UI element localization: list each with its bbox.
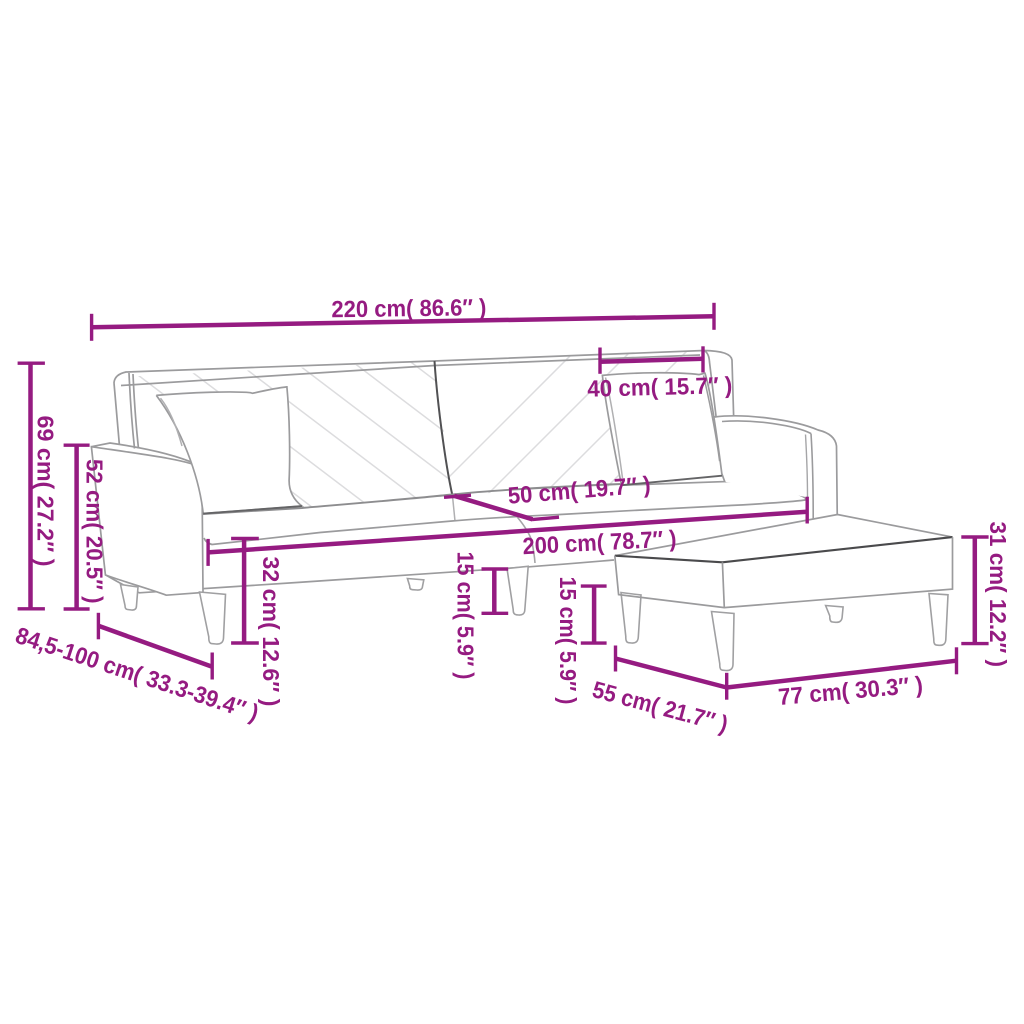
- svg-text:52 cm( 20.5″ ): 52 cm( 20.5″ ): [81, 459, 107, 604]
- svg-text:15 cm( 5.9″ ): 15 cm( 5.9″ ): [453, 552, 479, 680]
- svg-text:32 cm( 12.6″ ): 32 cm( 12.6″ ): [258, 557, 284, 707]
- svg-text:55 cm( 21.7″ ): 55 cm( 21.7″ ): [590, 676, 731, 737]
- svg-text:31 cm( 12.2″ ): 31 cm( 12.2″ ): [985, 522, 1011, 668]
- svg-text:220 cm( 86.6″ ): 220 cm( 86.6″ ): [331, 294, 486, 322]
- svg-text:15 cm( 5.9″ ): 15 cm( 5.9″ ): [555, 577, 581, 705]
- svg-text:69 cm( 27.2″ ): 69 cm( 27.2″ ): [33, 416, 59, 567]
- svg-text:40 cm( 15.7″ ): 40 cm( 15.7″ ): [587, 372, 733, 402]
